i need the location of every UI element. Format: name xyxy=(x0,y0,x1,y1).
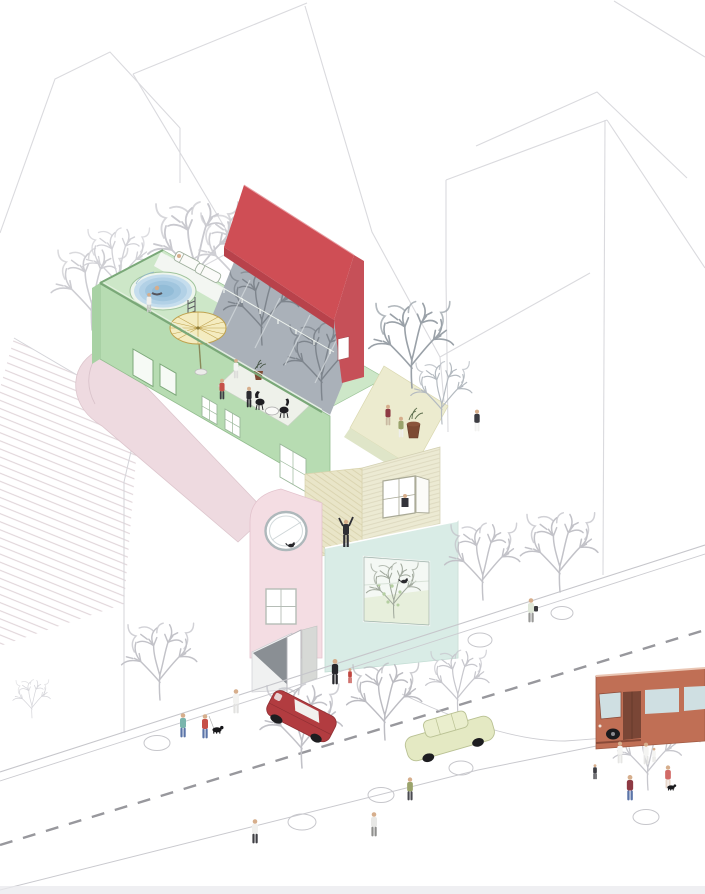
bg-building-far-right xyxy=(476,1,705,178)
red-roof-door xyxy=(338,337,349,361)
person-walker-teal xyxy=(180,713,186,737)
person-bottom-center xyxy=(371,812,377,836)
porthole-window xyxy=(266,512,307,550)
child-bus-2 xyxy=(593,764,597,779)
child-bus xyxy=(652,748,656,763)
person-bus-maroon xyxy=(627,775,633,800)
bus xyxy=(596,668,705,749)
illustration-canvas xyxy=(0,0,705,894)
person-bottom-olive xyxy=(407,777,413,800)
child-entrance xyxy=(348,668,352,683)
person-walker-white xyxy=(233,689,239,713)
bus-window-1 xyxy=(645,688,679,714)
vehicles xyxy=(262,668,705,767)
bus-windshield xyxy=(599,692,621,719)
rooftop-pool xyxy=(130,272,196,310)
door-opening xyxy=(302,626,317,684)
person-bus-pink xyxy=(665,765,671,788)
bus-window-2 xyxy=(684,686,705,711)
street-tree-front xyxy=(347,663,422,740)
person-bottom-white xyxy=(252,819,258,843)
person-dog-walker xyxy=(202,714,208,738)
yellow-green-car xyxy=(400,704,498,767)
bg-building-right xyxy=(446,120,705,575)
axonometric-illustration xyxy=(0,0,705,894)
green-wall-west-gable xyxy=(92,283,100,364)
dog-on-leash xyxy=(212,726,223,734)
image-bottom-edge xyxy=(0,886,705,894)
bg-building-left xyxy=(0,52,180,233)
pink-four-pane-window xyxy=(266,589,296,624)
person-roof-right xyxy=(474,410,479,432)
shuttered-window xyxy=(383,476,429,518)
